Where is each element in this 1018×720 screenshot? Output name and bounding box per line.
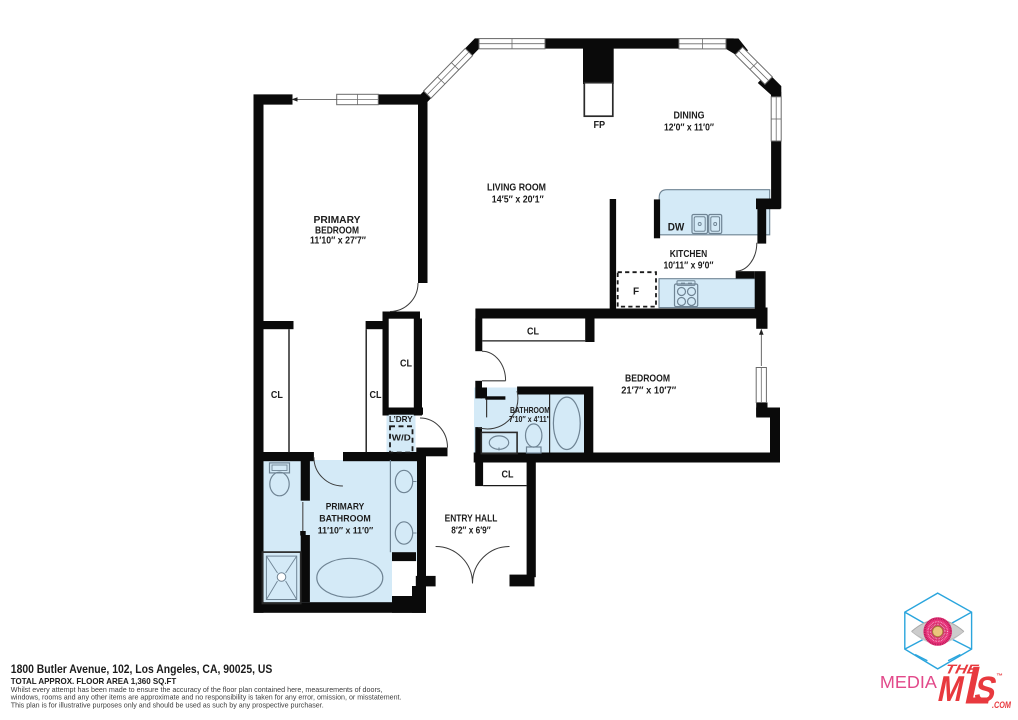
svg-text:CL: CL: [370, 390, 382, 401]
svg-text:14′5″ x 20′1″: 14′5″ x 20′1″: [492, 194, 544, 205]
svg-text:LIVING ROOM: LIVING ROOM: [487, 182, 546, 193]
svg-text:.COM: .COM: [992, 700, 1012, 710]
svg-text:W/D: W/D: [392, 433, 411, 443]
svg-text:CL: CL: [527, 327, 539, 338]
svg-text:DW: DW: [668, 221, 685, 233]
svg-text:ENTRY HALL: ENTRY HALL: [445, 513, 498, 524]
svg-text:CL: CL: [271, 390, 283, 401]
svg-text:This plan is for illustrative: This plan is for illustrative purposes o…: [11, 700, 324, 709]
svg-text:MEDIA: MEDIA: [880, 672, 937, 692]
svg-text:CL: CL: [502, 469, 514, 480]
svg-text:™: ™: [997, 673, 1004, 680]
svg-text:PRIMARY: PRIMARY: [326, 501, 365, 511]
svg-text:F: F: [633, 287, 639, 298]
svg-text:12′0″ x 11′0″: 12′0″ x 11′0″: [664, 123, 714, 134]
svg-text:KITCHEN: KITCHEN: [670, 249, 708, 260]
svg-text:10′11″ x 9′0″: 10′11″ x 9′0″: [664, 261, 714, 272]
svg-text:CL: CL: [400, 358, 412, 369]
svg-text:11′10″ x 27′7″: 11′10″ x 27′7″: [310, 236, 366, 247]
svg-text:8′2″ x 6′9″: 8′2″ x 6′9″: [451, 525, 491, 536]
svg-text:11′10″ x 11′0″: 11′10″ x 11′0″: [318, 525, 374, 535]
svg-text:1800 Butler Avenue, 102, Los A: 1800 Butler Avenue, 102, Los Angeles, CA…: [11, 663, 273, 676]
svg-text:7′10″ x 4′11″: 7′10″ x 4′11″: [509, 414, 550, 424]
svg-text:FP: FP: [593, 119, 605, 131]
svg-text:21′7″ x 10′7″: 21′7″ x 10′7″: [621, 385, 676, 396]
svg-text:DINING: DINING: [674, 111, 705, 122]
svg-text:BEDROOM: BEDROOM: [625, 374, 670, 385]
svg-text:L’DRY: L’DRY: [389, 414, 413, 424]
svg-text:BATHROOM: BATHROOM: [319, 513, 370, 523]
